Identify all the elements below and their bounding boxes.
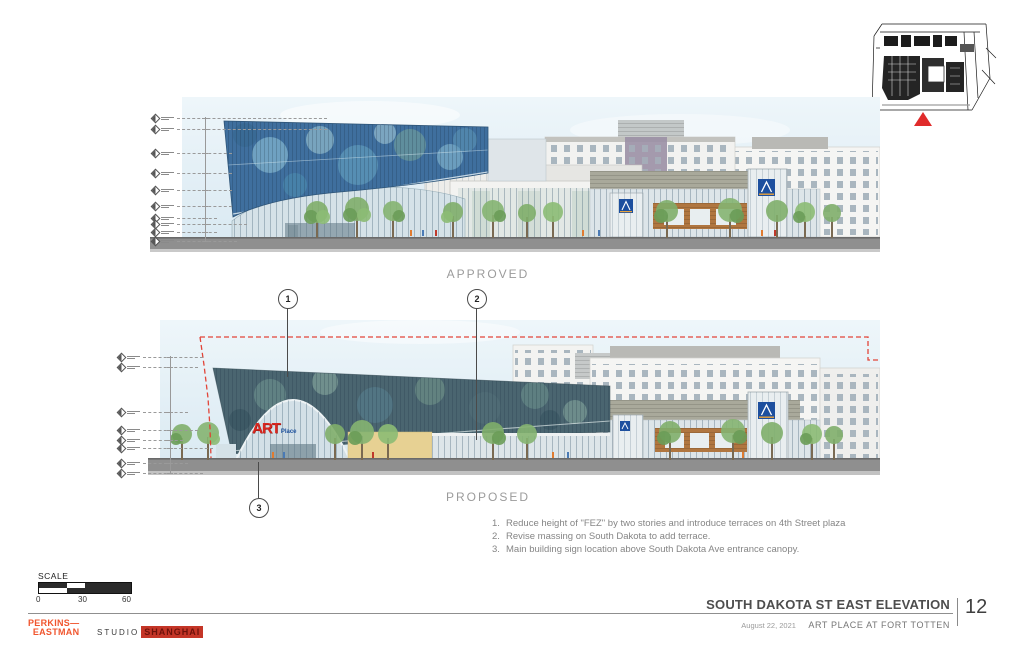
level-label-placeholder bbox=[161, 152, 174, 155]
datum-diamond-icon bbox=[117, 352, 127, 362]
place-sign-text: Place bbox=[281, 429, 297, 435]
leader-line bbox=[143, 473, 203, 474]
callout-3-leader bbox=[258, 462, 259, 498]
datum-diamond-icon bbox=[117, 425, 127, 435]
datum-diamond-icon bbox=[151, 201, 161, 211]
scale-tick-0: 0 bbox=[36, 595, 40, 604]
shanghai-badge: SHANGHAI bbox=[141, 626, 203, 638]
leader-line bbox=[177, 153, 232, 154]
note-text: Revise massing on South Dakota to add te… bbox=[506, 530, 710, 543]
aldi-tower-left bbox=[610, 193, 643, 237]
datum-diamond-icon bbox=[117, 362, 127, 372]
datum-diamond-icon bbox=[117, 443, 127, 453]
note-number: 2. bbox=[492, 530, 506, 543]
cloud bbox=[320, 320, 520, 344]
leader-line bbox=[143, 440, 183, 441]
aldi-sign bbox=[758, 402, 775, 419]
scale-label: SCALE bbox=[38, 571, 138, 581]
drawing-sheet: ART Place APPROVED PROPOSED 1 2 3 1. Red… bbox=[0, 0, 1024, 669]
level-label-placeholder bbox=[127, 429, 140, 432]
level-marker bbox=[118, 444, 213, 452]
perkins-eastman-logo: PERKINS— EASTMAN bbox=[28, 619, 79, 637]
revision-notes: 1. Reduce height of "FEZ" by two stories… bbox=[492, 517, 882, 556]
level-label-placeholder bbox=[161, 205, 174, 208]
level-marker bbox=[152, 202, 232, 210]
level-label-placeholder bbox=[127, 356, 140, 359]
datum-diamond-icon bbox=[151, 124, 161, 134]
note-item: 1. Reduce height of "FEZ" by two stories… bbox=[492, 517, 882, 530]
street-label-placeholder bbox=[882, 104, 970, 106]
scale-ticks: 0 30 60 bbox=[38, 594, 130, 604]
level-label-placeholder bbox=[127, 447, 140, 450]
sheet-title: SOUTH DAKOTA ST EAST ELEVATION bbox=[530, 597, 950, 612]
proposed-elevation-drawing bbox=[120, 320, 880, 485]
callout-3: 3 bbox=[249, 498, 269, 518]
note-item: 2. Revise massing on South Dakota to add… bbox=[492, 530, 882, 543]
level-label-placeholder bbox=[161, 231, 174, 234]
fez-step-volume bbox=[488, 139, 546, 181]
note-number: 1. bbox=[492, 517, 506, 530]
level-marker bbox=[118, 436, 183, 444]
leader-line bbox=[143, 430, 198, 431]
level-label-placeholder bbox=[127, 366, 140, 369]
scale-bar: SCALE 0 30 60 bbox=[38, 571, 138, 604]
level-label-placeholder bbox=[161, 117, 174, 120]
level-label-placeholder bbox=[127, 472, 140, 475]
callout-2-leader bbox=[476, 307, 477, 440]
art-place-sign: ART Place bbox=[252, 422, 297, 436]
datum-diamond-icon bbox=[117, 458, 127, 468]
scale-tick-60: 60 bbox=[122, 595, 131, 604]
sheet-subtitle: August 22, 2021 ART PLACE AT FORT TOTTEN bbox=[530, 615, 950, 633]
level-marker bbox=[152, 149, 232, 157]
level-marker bbox=[152, 125, 327, 133]
note-item: 3. Main building sign location above Sou… bbox=[492, 543, 882, 556]
aldi-tower-left bbox=[613, 415, 643, 460]
ground bbox=[150, 237, 880, 252]
level-marker bbox=[152, 237, 237, 245]
leader-line bbox=[177, 218, 217, 219]
level-marker bbox=[152, 228, 217, 236]
note-text: Reduce height of "FEZ" by two stories an… bbox=[506, 517, 845, 530]
callout-2: 2 bbox=[467, 289, 487, 309]
datum-diamond-icon bbox=[151, 227, 161, 237]
datum-diamond-icon bbox=[151, 185, 161, 195]
leader-line bbox=[177, 224, 247, 225]
footer-rule bbox=[28, 613, 953, 614]
leader-line bbox=[177, 173, 232, 174]
studio-text: STUDIO bbox=[97, 628, 139, 637]
level-label-placeholder bbox=[127, 411, 140, 414]
level-marker bbox=[118, 408, 188, 416]
aldi-sign bbox=[620, 421, 630, 431]
level-marker bbox=[118, 469, 203, 477]
leader-line bbox=[143, 412, 188, 413]
perkins-line2: EASTMAN bbox=[28, 628, 79, 637]
level-marker bbox=[152, 220, 247, 228]
leader-line bbox=[143, 367, 198, 368]
scale-tick-30: 30 bbox=[78, 595, 87, 604]
side-glass bbox=[216, 444, 236, 460]
level-marker bbox=[118, 426, 198, 434]
page-number: 12 bbox=[965, 596, 987, 619]
project-name: ART PLACE AT FORT TOTTEN bbox=[808, 620, 950, 630]
level-marker bbox=[152, 169, 232, 177]
context-buildings bbox=[884, 35, 974, 52]
note-text: Main building sign location above South … bbox=[506, 543, 799, 556]
leader-line bbox=[177, 232, 217, 233]
level-marker bbox=[152, 186, 232, 194]
datum-diamond-icon bbox=[151, 236, 161, 246]
aldi-sign bbox=[619, 199, 633, 213]
level-marker bbox=[152, 114, 327, 122]
site-key-marker-triangle bbox=[914, 112, 932, 126]
titleblock-divider bbox=[957, 598, 958, 626]
datum-diamond-icon bbox=[117, 407, 127, 417]
proposed-label: PROPOSED bbox=[388, 490, 588, 504]
datum-diamond-icon bbox=[151, 113, 161, 123]
aldi-sign bbox=[758, 179, 775, 196]
sheet-date: August 22, 2021 bbox=[741, 621, 796, 630]
level-marker bbox=[118, 459, 188, 467]
approved-label: APPROVED bbox=[388, 267, 588, 281]
leader-line bbox=[177, 190, 232, 191]
datum-diamond-icon bbox=[151, 148, 161, 158]
callout-1-leader bbox=[287, 307, 288, 377]
callout-1: 1 bbox=[278, 289, 298, 309]
level-marker bbox=[118, 363, 198, 371]
leader-line bbox=[177, 118, 327, 119]
level-marker bbox=[118, 353, 203, 361]
note-number: 3. bbox=[492, 543, 506, 556]
level-label-placeholder bbox=[127, 439, 140, 442]
level-label-placeholder bbox=[127, 462, 140, 465]
leader-line bbox=[143, 357, 203, 358]
site-key-map bbox=[868, 18, 998, 118]
level-label-placeholder bbox=[161, 223, 174, 226]
level-label-placeholder bbox=[161, 172, 174, 175]
art-sign-text: ART bbox=[252, 422, 280, 436]
leader-line bbox=[177, 206, 232, 207]
scale-bar-graphic bbox=[38, 582, 132, 594]
leader-line bbox=[143, 463, 188, 464]
site-buildings bbox=[882, 56, 964, 100]
level-label-placeholder bbox=[161, 128, 174, 131]
leader-line bbox=[177, 241, 237, 242]
studio-shanghai-logo: STUDIO SHANGHAI bbox=[97, 626, 203, 638]
datum-diamond-icon bbox=[151, 168, 161, 178]
leader-line bbox=[177, 129, 327, 130]
level-label-placeholder bbox=[161, 189, 174, 192]
level-label-placeholder bbox=[161, 240, 174, 243]
datum-diamond-icon bbox=[117, 468, 127, 478]
leader-line bbox=[143, 448, 213, 449]
